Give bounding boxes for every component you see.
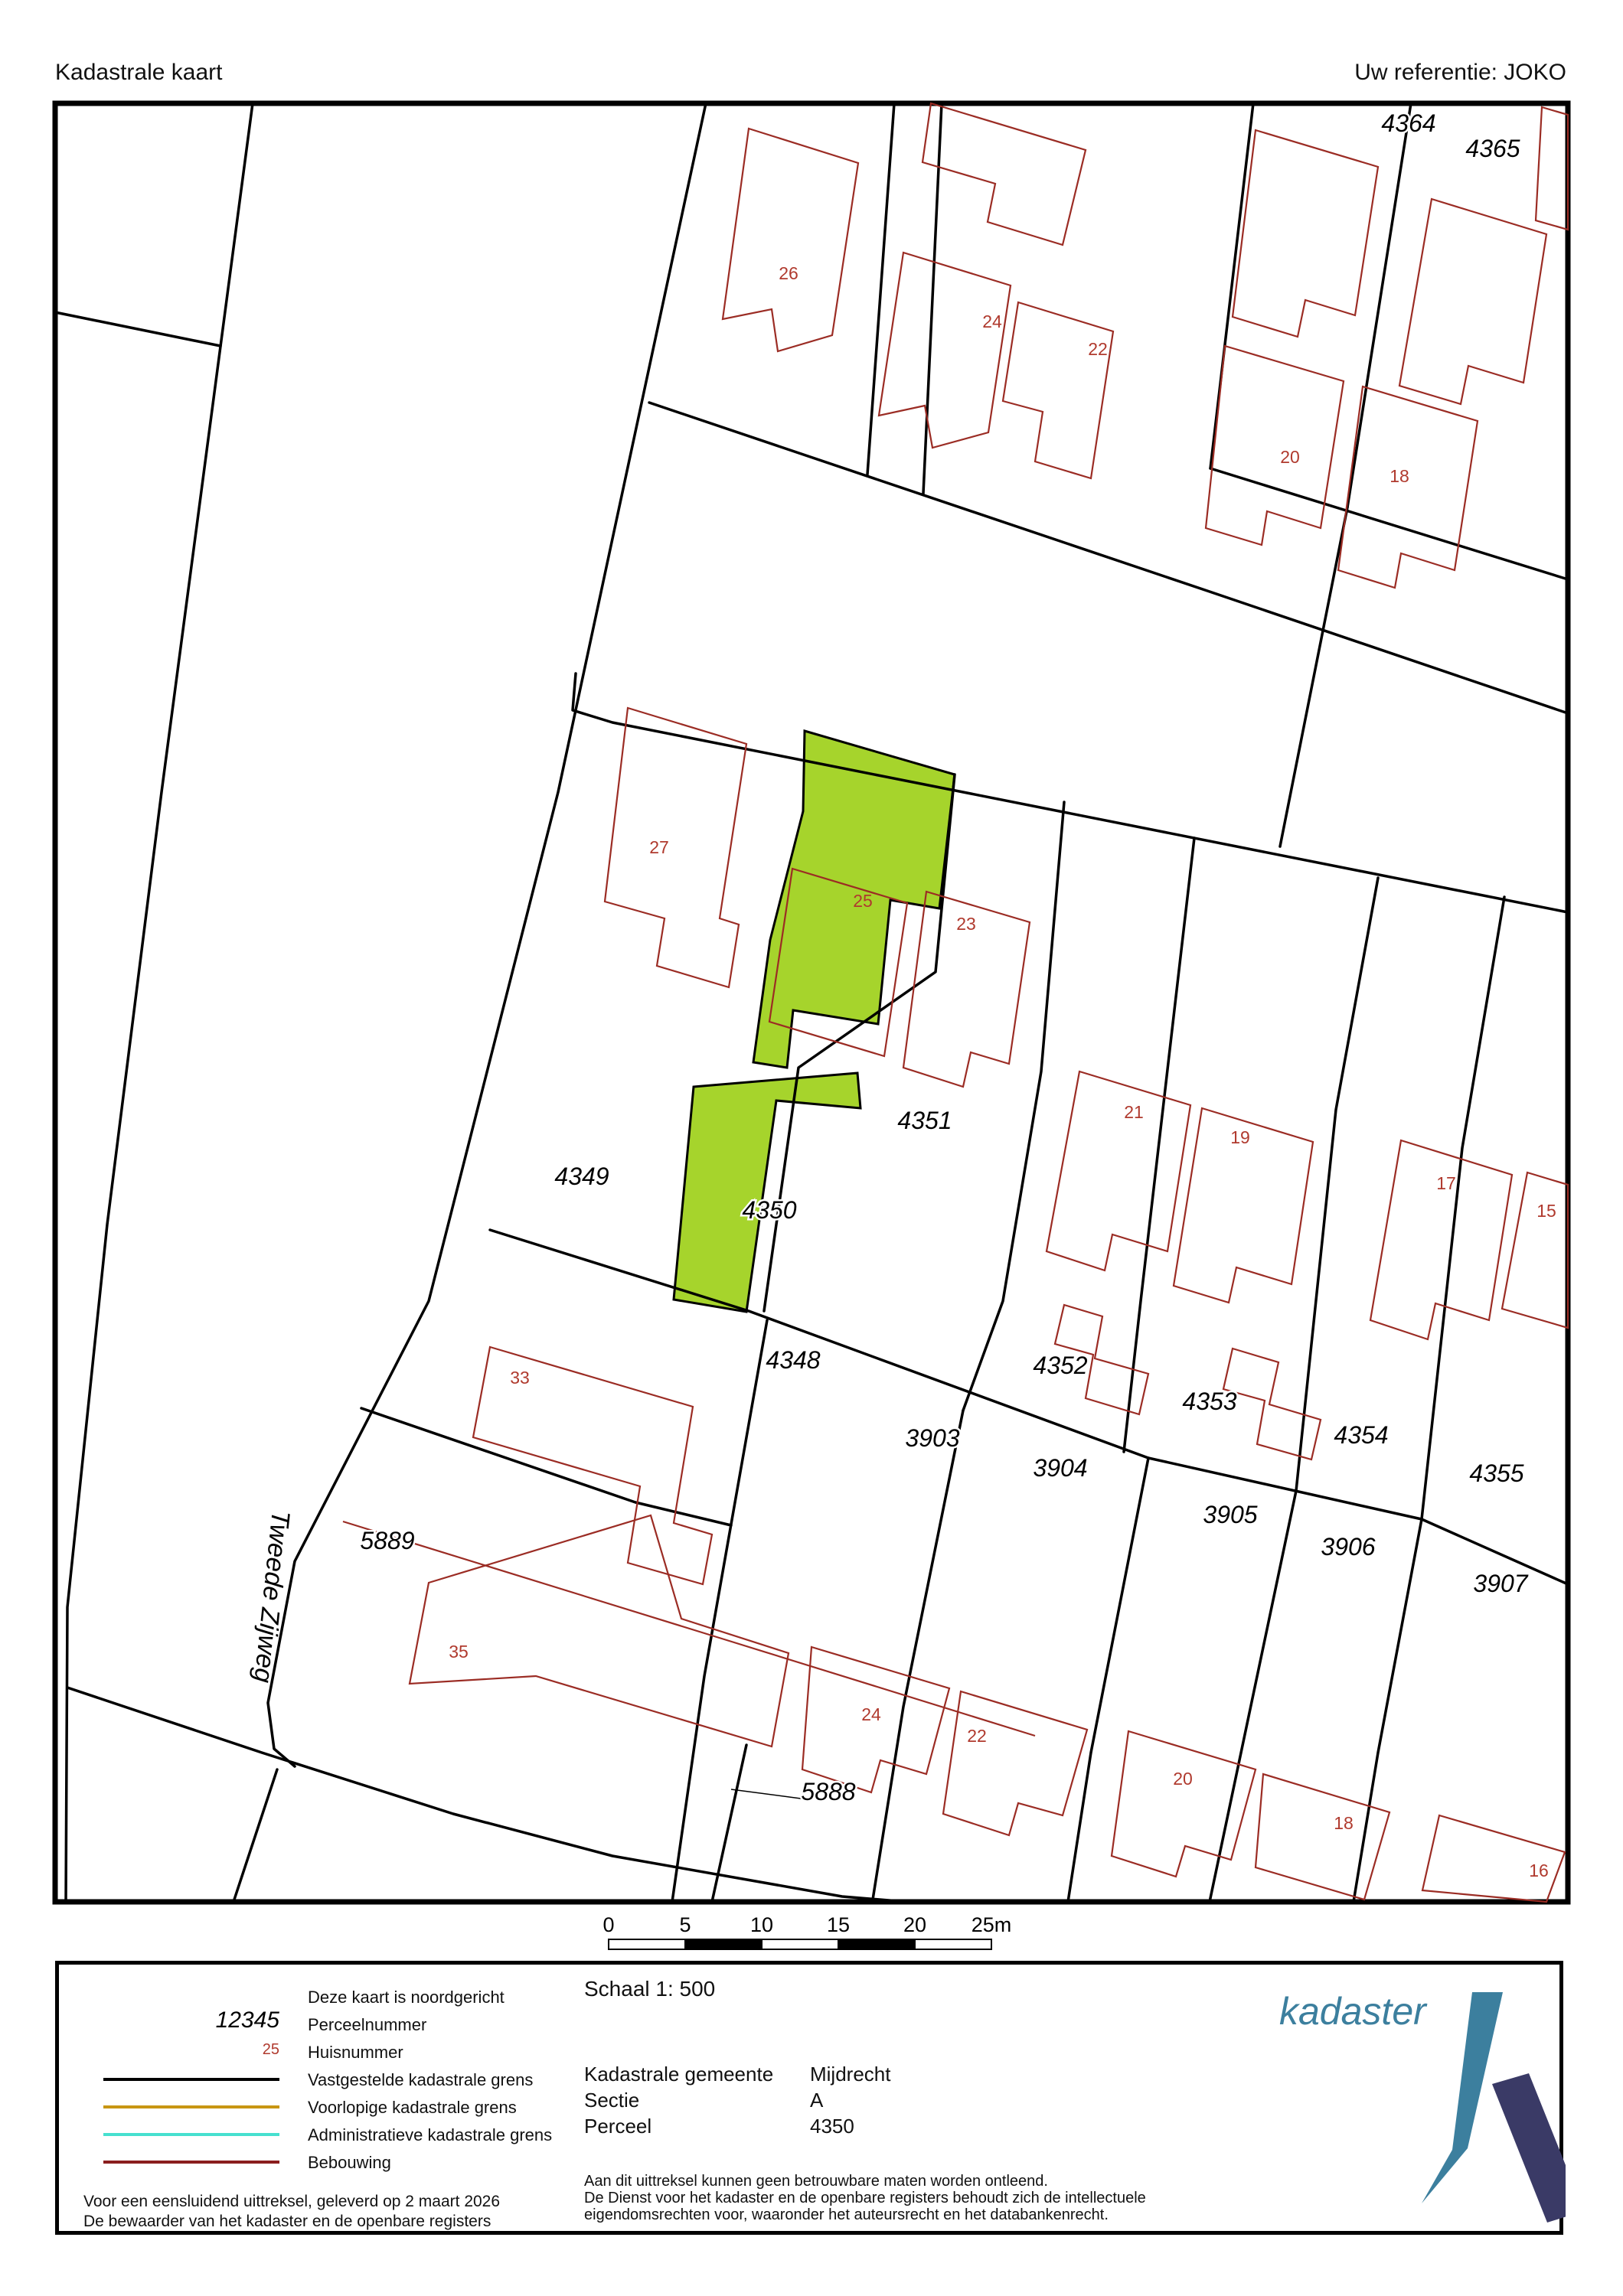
- legend-label-2: Huisnummer: [308, 2043, 403, 2063]
- building-outline-2: [879, 253, 1011, 448]
- legend-label-1: Perceelnummer: [308, 2015, 426, 2035]
- scalebar-segment-3: [838, 1939, 915, 1949]
- parcel-number-4351: 4351: [897, 1107, 952, 1134]
- building-outline-5: [1399, 199, 1546, 404]
- scalebar-tick-5: 5: [679, 1913, 691, 1936]
- scalebar-tick-15: 15: [827, 1913, 850, 1936]
- parcel-number-3905: 3905: [1203, 1501, 1257, 1528]
- sectie-value: A: [810, 2089, 823, 2112]
- disclaimer-line-2: De Dienst voor het kadaster en de openba…: [584, 2190, 1146, 2207]
- house-number-22: 22: [967, 1726, 987, 1746]
- cadastral-boundary-18: [672, 1320, 767, 1902]
- scalebar-segment-4: [915, 1939, 991, 1949]
- building-outline-17: [473, 1347, 712, 1584]
- perceel-value: 4350: [810, 2115, 854, 2138]
- building-outline-23: [1422, 1815, 1565, 1902]
- building-outline-7: [1338, 386, 1478, 588]
- house-number-17: 17: [1436, 1173, 1456, 1193]
- house-number-24: 24: [861, 1704, 881, 1724]
- house-number-24: 24: [982, 311, 1002, 331]
- building-outline-8: [605, 708, 746, 987]
- house-number-23: 23: [956, 914, 976, 934]
- parcel-number-5889: 5889: [360, 1527, 414, 1554]
- building-outline-6: [1206, 346, 1344, 545]
- house-number-27: 27: [649, 837, 669, 857]
- scalebar-segment-1: [685, 1939, 762, 1949]
- parcel-number-4354: 4354: [1334, 1421, 1388, 1449]
- building-outline-21: [1112, 1731, 1256, 1877]
- cadastral-boundary-12: [963, 802, 1064, 1411]
- scale-text: Schaal 1: 500: [584, 1977, 715, 2001]
- parcel-number-4365: 4365: [1465, 135, 1520, 162]
- scalebar-tick-25m: 25m: [972, 1913, 1012, 1936]
- building-outline-4: [1233, 130, 1378, 337]
- leader-line-5888: [731, 1789, 801, 1799]
- parcel-number-4353: 4353: [1182, 1388, 1236, 1415]
- house-number-16: 16: [1529, 1861, 1549, 1880]
- house-number-22: 22: [1088, 339, 1108, 359]
- building-outline-18: [410, 1515, 789, 1746]
- cadastral-boundary-20: [1068, 1458, 1148, 1902]
- house-number-25: 25: [853, 891, 873, 911]
- legend-label-5: Administratieve kadastrale grens: [308, 2125, 552, 2145]
- cadastral-boundary-19: [873, 1411, 963, 1900]
- parcel-number-4364: 4364: [1381, 109, 1435, 137]
- cadastral-boundary-7: [1210, 103, 1253, 468]
- cadastral-boundary-0: [66, 103, 253, 1902]
- legend-line-legend_cyan: [103, 2133, 279, 2136]
- scalebar-tick-20: 20: [903, 1913, 926, 1936]
- map-legend-footer: Deze kaart is noordgericht12345Perceelnu…: [55, 1961, 1563, 2235]
- sectie-label: Sectie: [584, 2089, 639, 2112]
- cadastral-map: 4364436543494350435143484352435343544355…: [0, 0, 1623, 2296]
- cadastral-boundary-11: [490, 1230, 1568, 1584]
- cadastral-boundary-5: [867, 103, 894, 475]
- house-number-20: 20: [1173, 1769, 1193, 1789]
- parcel-number-4355: 4355: [1469, 1459, 1523, 1487]
- scalebar-segment-2: [762, 1939, 838, 1949]
- legend-parcelnumber-sample: 12345: [103, 2007, 279, 2033]
- parcel-number-4349: 4349: [554, 1163, 609, 1190]
- legend-label-0: Deze kaart is noordgericht: [308, 1988, 505, 2007]
- house-number-21: 21: [1124, 1102, 1144, 1122]
- legend-label-3: Vastgestelde kadastrale grens: [308, 2070, 533, 2090]
- gemeente-value: Mijdrecht: [810, 2063, 890, 2086]
- kadaster-logo-blade: [1422, 1992, 1503, 2203]
- legend-housenumber-sample: 25: [103, 2041, 279, 2059]
- building-outline-1: [923, 103, 1086, 245]
- cadastral-boundary-22: [1354, 1519, 1422, 1902]
- house-number-33: 33: [510, 1368, 530, 1388]
- parcel-number-3906: 3906: [1321, 1533, 1375, 1561]
- building-outline-20: [943, 1691, 1087, 1835]
- disclaimer-line-3: eigendomsrechten voor, waaronder het aut…: [584, 2206, 1109, 2224]
- cadastral-boundary-24: [233, 1769, 277, 1902]
- parcel-number-4348: 4348: [766, 1346, 820, 1374]
- perceel-label: Perceel: [584, 2115, 651, 2138]
- building-outline-0: [723, 129, 858, 351]
- house-number-15: 15: [1536, 1201, 1556, 1221]
- cadastral-boundary-2: [268, 103, 706, 1766]
- building-outline-22: [1256, 1774, 1390, 1900]
- highlighted-parcel-1: [674, 1073, 860, 1312]
- legend-line-legend_darkred: [103, 2161, 279, 2164]
- building-outline-3: [1003, 302, 1113, 478]
- scalebar-tick-10: 10: [750, 1913, 773, 1936]
- parcel-number-5888: 5888: [801, 1778, 855, 1805]
- building-outline-13: [1370, 1140, 1512, 1339]
- kadaster-logo: kadaster: [1267, 1980, 1566, 2232]
- cadastral-boundary-23: [67, 1688, 907, 1902]
- kadaster-logo-stroke: [1492, 2073, 1566, 2223]
- scalebar-segment-0: [609, 1939, 685, 1949]
- parcel-number-3907: 3907: [1473, 1570, 1528, 1597]
- cadastral-boundary-1: [55, 312, 220, 346]
- building-outline-14: [1502, 1172, 1568, 1328]
- house-number-18: 18: [1334, 1813, 1354, 1833]
- house-number-26: 26: [779, 263, 798, 283]
- cadastral-boundary-4: [649, 403, 1568, 713]
- cadastral-boundary-10: [1280, 507, 1347, 846]
- disclaimer-line-1: Aan dit uittreksel kunnen geen betrouwba…: [584, 2173, 1048, 2190]
- legend-label-6: Bebouwing: [308, 2153, 391, 2173]
- parcel-number-3903: 3903: [905, 1424, 959, 1452]
- legend-line-legend_gold: [103, 2105, 279, 2108]
- house-number-20: 20: [1280, 447, 1300, 467]
- cadastral-boundary-6: [923, 103, 942, 494]
- certification-line-2: De bewaarder van het kadaster en de open…: [83, 2213, 491, 2231]
- parcel-number-4352: 4352: [1033, 1352, 1087, 1379]
- cadastral-boundary-21: [1210, 1491, 1296, 1902]
- certification-line-1: Voor een eensluidend uittreksel, gelever…: [83, 2193, 500, 2211]
- legend-line-boundary: [103, 2078, 279, 2081]
- kadaster-logo-text: kadaster: [1279, 1990, 1428, 2033]
- house-number-35: 35: [449, 1642, 469, 1662]
- scalebar-tick-0: 0: [603, 1913, 614, 1936]
- gemeente-label: Kadastrale gemeente: [584, 2063, 773, 2086]
- legend-label-4: Voorlopige kadastrale grens: [308, 2098, 517, 2118]
- building-outline-11: [1047, 1071, 1190, 1270]
- building-line-0: [343, 1521, 1035, 1736]
- cadastral-boundary-3: [573, 673, 1568, 912]
- house-number-18: 18: [1390, 466, 1409, 486]
- house-number-19: 19: [1230, 1127, 1250, 1147]
- parcel-number-4350: 4350: [742, 1196, 796, 1224]
- cadastral-boundary-14: [1296, 878, 1378, 1491]
- parcel-number-3904: 3904: [1033, 1454, 1087, 1482]
- building-outline-24: [1536, 107, 1568, 230]
- cadastral-boundary-15: [1422, 897, 1504, 1519]
